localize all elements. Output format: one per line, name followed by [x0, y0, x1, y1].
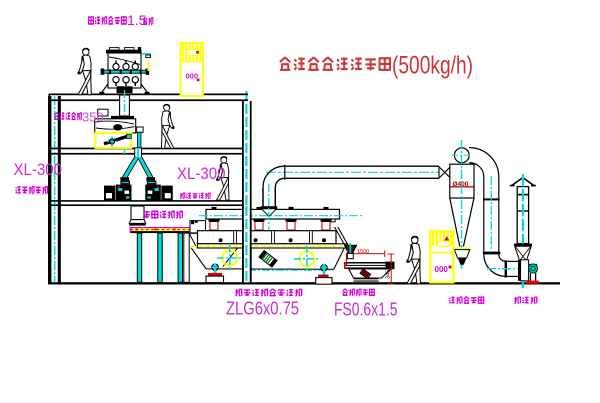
svg-text:350: 350 [82, 110, 104, 125]
svg-text:1500: 1500 [357, 249, 369, 255]
svg-text:000: 000 [435, 265, 449, 274]
svg-text:000: 000 [186, 72, 199, 81]
svg-text:XL-300: XL-300 [14, 160, 63, 179]
svg-text:ZLG6x0.75: ZLG6x0.75 [226, 298, 299, 319]
svg-text:FS0.6x1.5: FS0.6x1.5 [334, 299, 398, 320]
svg-text:(500kg/h): (500kg/h) [392, 52, 473, 80]
svg-text:345: 345 [386, 270, 392, 279]
svg-text:1.5: 1.5 [127, 12, 147, 28]
svg-text:Ø400: Ø400 [453, 181, 469, 188]
svg-text:XL-300: XL-300 [177, 164, 226, 183]
